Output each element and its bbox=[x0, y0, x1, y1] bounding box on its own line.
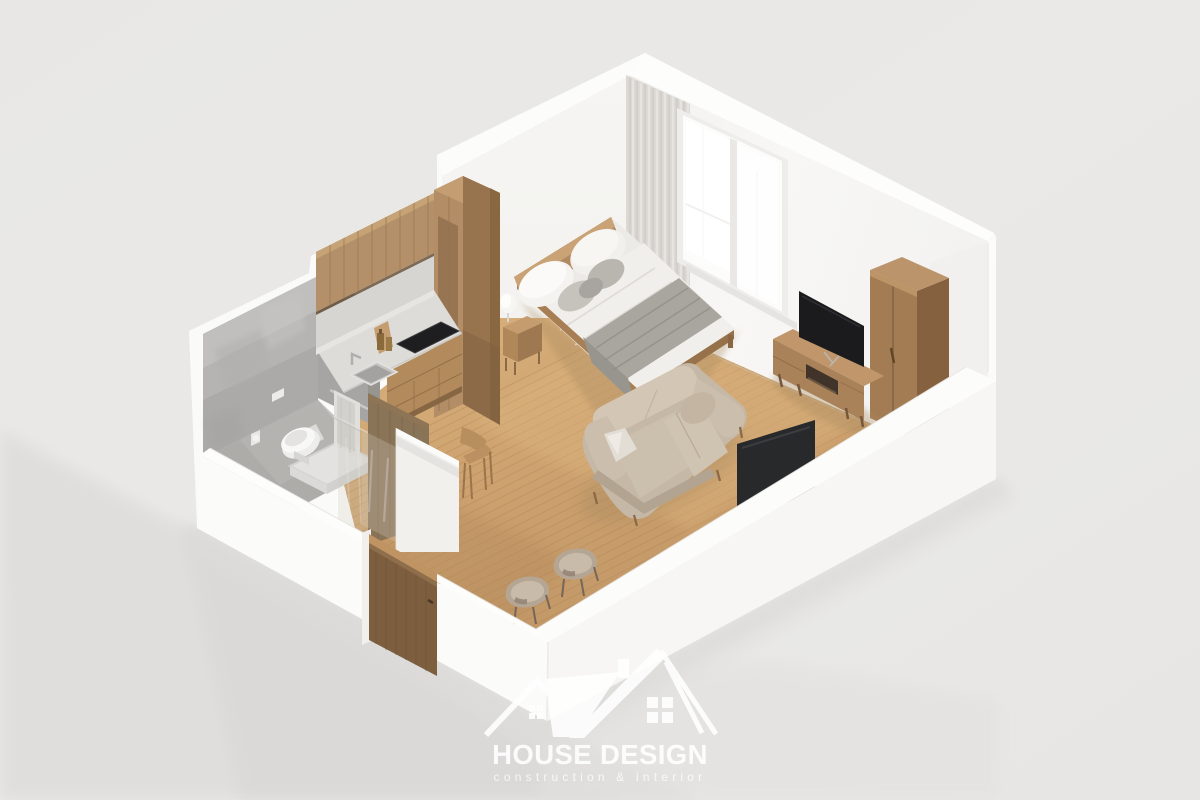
svg-text:HOUSE DESIGN: HOUSE DESIGN bbox=[492, 739, 708, 770]
svg-text:construction & interior: construction & interior bbox=[494, 770, 707, 784]
